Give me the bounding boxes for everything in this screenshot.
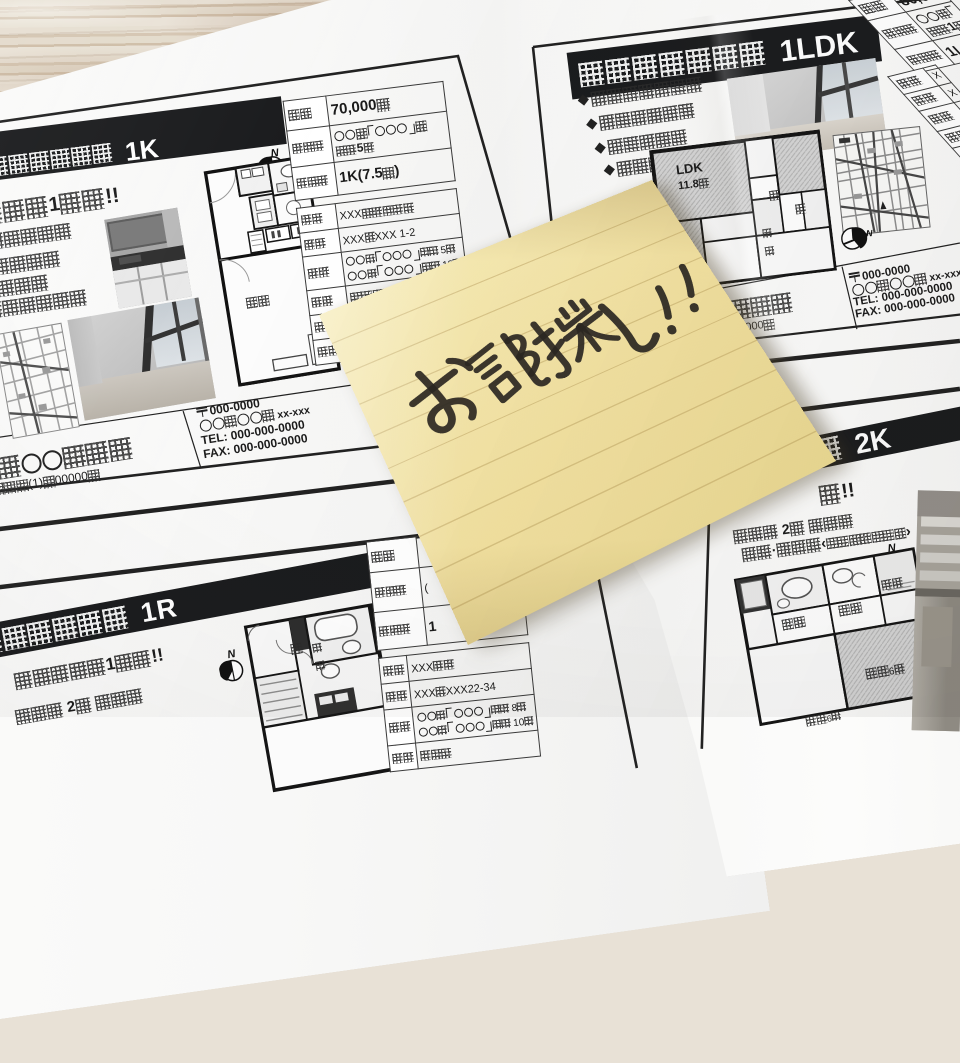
svg-text:N: N	[866, 228, 874, 238]
svg-text:N: N	[226, 648, 237, 661]
